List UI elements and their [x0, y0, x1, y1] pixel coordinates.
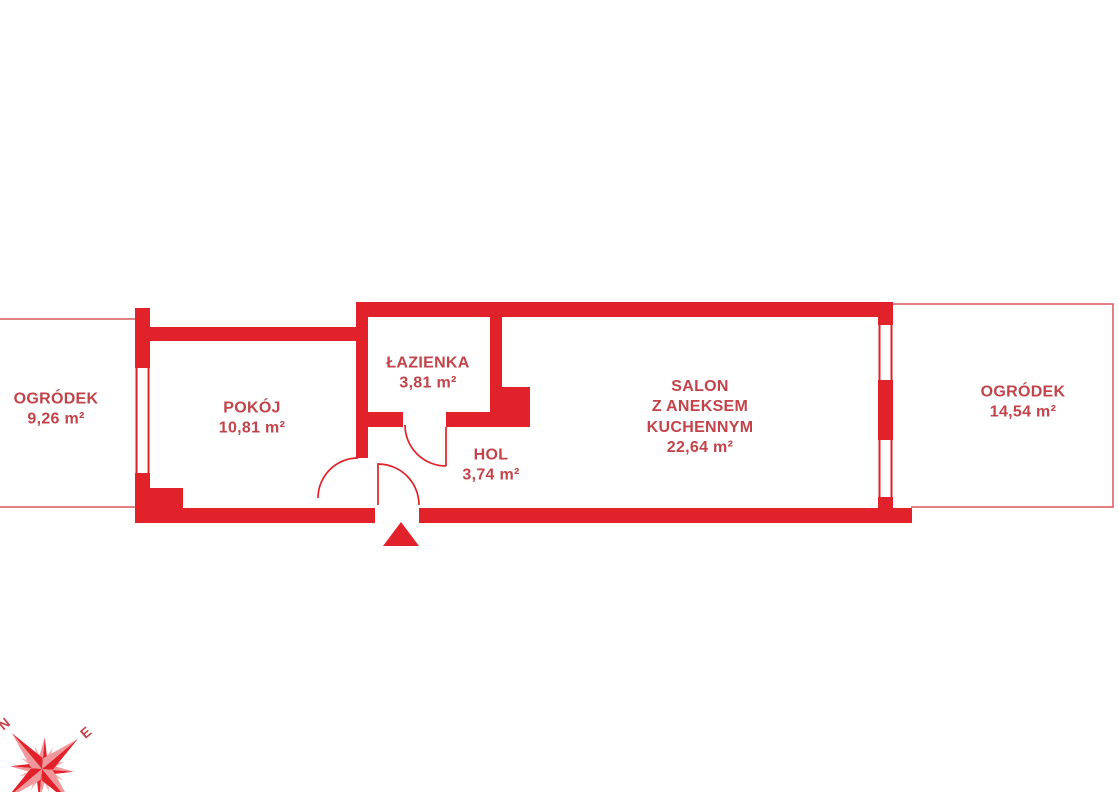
floorplan-canvas: N E OGRÓDEK 9,26 m² POKÓJ 10,81 m² ŁAZIE… — [0, 0, 1118, 792]
window-right-top-icon — [880, 325, 892, 380]
room-label-hol: HOL 3,74 m² — [462, 446, 519, 487]
room-area: 3,81 m² — [386, 374, 469, 394]
window-left-icon — [137, 368, 149, 473]
room-name: SALON — [647, 377, 754, 397]
room-label-garden-left: OGRÓDEK 9,26 m² — [14, 390, 99, 431]
floorplan-drawing: N E — [0, 0, 1118, 792]
room-label-lazienka: ŁAZIENKA 3,81 m² — [386, 354, 469, 395]
compass-east-label: E — [77, 723, 94, 741]
room-area: 9,26 m² — [14, 410, 99, 430]
room-name: POKÓJ — [219, 399, 285, 419]
room-label-pokoj: POKÓJ 10,81 m² — [219, 399, 285, 440]
room-area: 3,74 m² — [462, 466, 519, 486]
room-label-garden-right: OGRÓDEK 14,54 m² — [981, 383, 1066, 424]
room-label-salon: SALON Z ANEKSEM KUCHENNYM 22,64 m² — [647, 377, 754, 459]
compass-icon: N E — [0, 678, 119, 792]
door-arc-bathroom — [405, 425, 446, 466]
compass-north-label: N — [0, 714, 13, 733]
entrance-arrow-icon — [383, 522, 419, 546]
room-name: ŁAZIENKA — [386, 354, 469, 374]
room-area: 14,54 m² — [981, 403, 1066, 423]
room-name: OGRÓDEK — [14, 390, 99, 410]
room-name: KUCHENNYM — [647, 418, 754, 438]
room-name: Z ANEKSEM — [647, 398, 754, 418]
room-area: 22,64 m² — [647, 438, 754, 458]
window-right-bottom-icon — [880, 440, 892, 497]
compass-star — [0, 703, 108, 792]
room-name: HOL — [462, 446, 519, 466]
door-arc-pokoj — [318, 458, 358, 498]
door-arc-entrance — [378, 464, 419, 505]
room-area: 10,81 m² — [219, 419, 285, 439]
room-name: OGRÓDEK — [981, 383, 1066, 403]
